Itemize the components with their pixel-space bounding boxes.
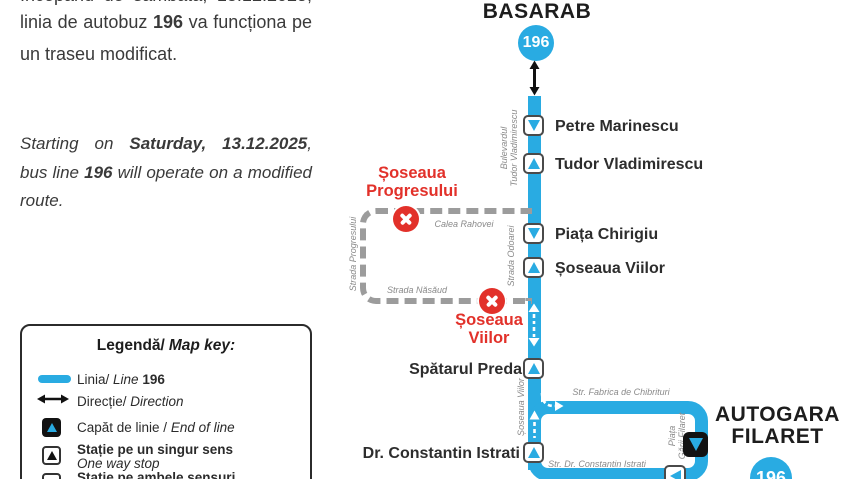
loop-turn-right-arrow-icon [538, 393, 564, 411]
closed-label-progresului: Șoseaua Progresului [332, 164, 492, 200]
legend-bothways-label-ro: Stație pe ambele sensuri [77, 470, 235, 479]
end-of-line-triangle [689, 438, 703, 451]
stop-label-spatarul-preda: Spătarul Preda [374, 361, 522, 378]
line-196-badge-top: 196 [518, 25, 554, 61]
stop-marker-piata-chirigiu [523, 223, 544, 244]
one-way-stop-icon [42, 446, 61, 465]
stop-label-petre-marinescu: Petre Marinescu [555, 118, 679, 135]
terminal-filaret-label: AUTOGARA FILARET [705, 404, 850, 448]
stop-label-soseaua-viilor: Șoseaua Viilor [555, 260, 665, 277]
street-dr-constantin-istrati: Str. Dr. Constantin Istrati [527, 459, 667, 469]
legend-oneway-label-ro: Stație pe un singur sens [77, 442, 233, 457]
up-triangle-icon [528, 158, 540, 169]
stop-label-dr-constantin-istrati: Dr. Constantin Istrati [340, 445, 520, 462]
street-strada-nasaud: Strada Năsăud [377, 285, 457, 295]
direction-arrow-icon [36, 392, 70, 406]
up-triangle-icon [528, 447, 540, 458]
terminal-marker-filaret [683, 432, 708, 457]
closed-label-viilor: Șoseaua Viilor [409, 311, 569, 347]
closed-stop-icon-progresului [393, 206, 419, 232]
notice-ro-line2: linia de autobuz 196 va funcționa pe [20, 11, 312, 33]
stop-marker-dr-constantin-istrati [523, 442, 544, 463]
legend-oneway-label-en: One way stop [77, 456, 160, 471]
stop-marker-spatarul-preda [523, 358, 544, 379]
end-of-line-triangle [47, 423, 57, 432]
stop-marker-petre-marinescu [523, 115, 544, 136]
line-number: 196 [153, 12, 183, 32]
notice-ro-line1-text: Începând de sâmbătă, 13.12.2025, [20, 0, 312, 5]
loop-up-arrow-icon [528, 410, 541, 440]
stop-marker-loop-bottom [664, 465, 686, 479]
notice-en-line2: bus line 196 will operate on a modified [20, 162, 312, 184]
legend-line-label: Linia/ Line 196 [77, 372, 165, 387]
up-triangle-icon [528, 262, 540, 273]
street-soseaua-viilor: Șoseaua Viilor [516, 368, 526, 446]
line-number: 196 [84, 163, 112, 182]
stop-marker-tudor-vladimirescu [523, 153, 544, 174]
stop-label-tudor-vladimirescu: Tudor Vladimirescu [555, 156, 703, 173]
legend-direction-label: Direcție/ Direction [77, 394, 184, 409]
left-triangle-icon [670, 470, 681, 479]
down-triangle-icon [528, 228, 540, 239]
stop-label-piata-chirigiu: Piața Chirigiu [555, 226, 658, 243]
notice-en-line3: route. [20, 190, 312, 212]
end-of-line-icon [42, 418, 61, 437]
terminal-basarab-label: BASARAB [437, 1, 637, 23]
notice-ro-line3: un traseu modificat. [20, 43, 312, 65]
street-bulevardul-tudor-vladimirescu: Bulevardul Tudor Vladimirescu [499, 93, 519, 203]
street-strada-odoarei: Strada Odoarei [506, 211, 516, 301]
notice-en-line1: Starting on Saturday, 13.12.2025, [20, 133, 312, 155]
legend-title: Legendă/Map key: [22, 337, 310, 355]
date-bold: Saturday, 13.12.2025 [129, 134, 307, 153]
down-triangle-icon [528, 120, 540, 131]
street-fabrica-de-chibrituri: Str. Fabrica de Chibrituri [551, 387, 691, 397]
stop-marker-soseaua-viilor [523, 257, 544, 278]
up-triangle-icon [528, 363, 540, 374]
both-ways-stop-icon [42, 473, 61, 479]
legend-endline-label: Capăt de linie / End of line [77, 420, 235, 435]
street-calea-rahovei: Calea Rahovei [424, 219, 504, 229]
two-way-direction-icon [527, 60, 542, 96]
line-196-badge-bottom: 196 [750, 457, 792, 479]
line-swatch-icon [38, 375, 71, 383]
street-strada-progresului: Strada Progresului [348, 204, 358, 304]
notice-ro-line1: Începând de sâmbătă, 13.12.2025, [20, 0, 312, 6]
legend: Legendă/Map key: Linia/ Line 196 Direcți… [20, 324, 312, 479]
route-change-notice: Începând de sâmbătă, 13.12.2025, linia d… [0, 0, 850, 479]
one-way-triangle [47, 451, 57, 460]
